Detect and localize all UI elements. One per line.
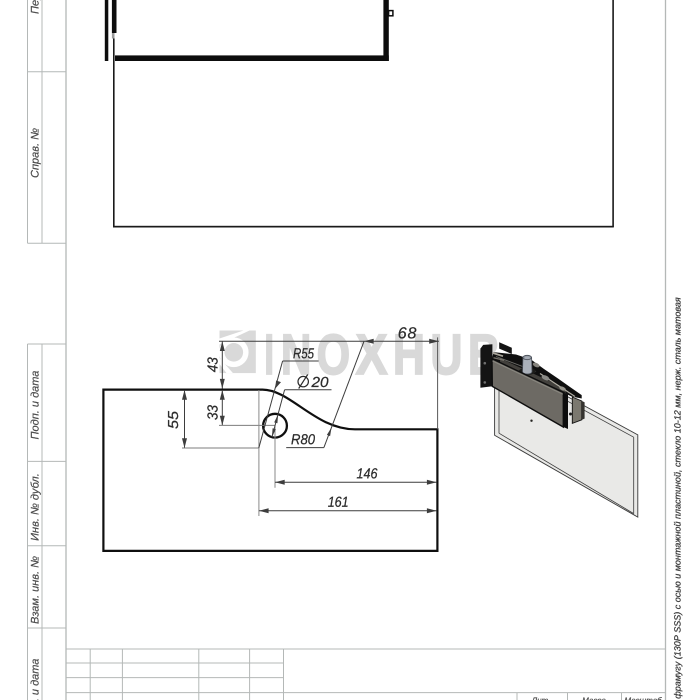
- svg-text:Фитинг верхний на фрамугу (130: Фитинг верхний на фрамугу (130Р SSS) с о…: [673, 297, 683, 700]
- svg-text:Подп. и дата: Подп. и дата: [30, 659, 42, 700]
- svg-text:I: I: [264, 323, 274, 387]
- svg-text:55: 55: [166, 410, 182, 429]
- svg-text:20: 20: [310, 375, 328, 391]
- svg-text:U: U: [430, 323, 462, 387]
- svg-text:161: 161: [328, 495, 349, 511]
- svg-text:R80: R80: [291, 432, 315, 448]
- svg-text:Перв. примен.: Перв. примен.: [30, 0, 42, 14]
- svg-text:Подп. и дата: Подп. и дата: [30, 371, 42, 440]
- svg-text:Инв. № дубл.: Инв. № дубл.: [30, 473, 42, 541]
- svg-text:Лит.: Лит.: [531, 696, 551, 700]
- svg-text:R55: R55: [293, 346, 315, 362]
- svg-text:68: 68: [398, 325, 417, 342]
- svg-text:Масса: Масса: [582, 696, 606, 700]
- svg-text:X: X: [356, 323, 388, 387]
- svg-text:Масштаб: Масштаб: [624, 696, 662, 700]
- svg-text:146: 146: [356, 466, 378, 482]
- svg-text:Взам. инв. №: Взам. инв. №: [30, 556, 42, 624]
- svg-text:Справ. №: Справ. №: [30, 128, 42, 178]
- svg-text:33: 33: [206, 405, 222, 420]
- svg-text:43: 43: [206, 357, 222, 372]
